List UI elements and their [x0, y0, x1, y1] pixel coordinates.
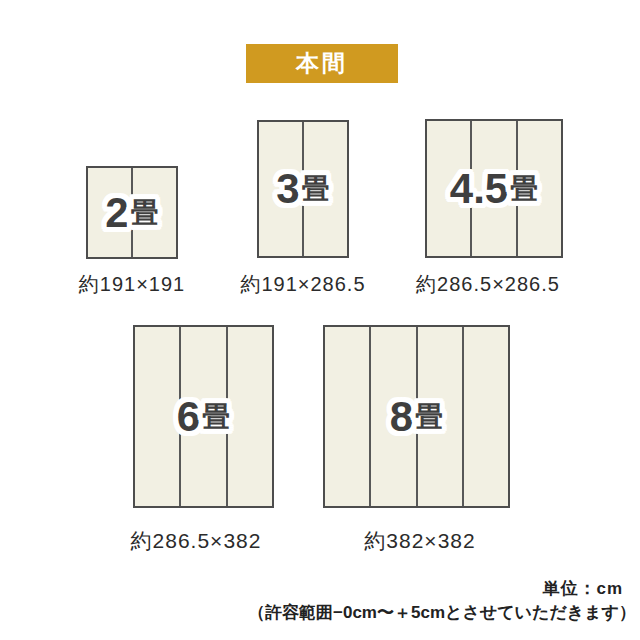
mat-size-number: 8 [390, 396, 413, 438]
mat-8jo-label: 8畳 [325, 327, 508, 506]
mat-3jo: 3畳 [257, 120, 349, 258]
mat-45jo: 4.5畳 [425, 119, 563, 258]
mat-3jo-dimensions: 約191×286.5 [203, 271, 403, 298]
mat-2jo: 2畳 [86, 166, 178, 259]
mat-size-number: 6 [177, 396, 200, 438]
mat-3jo-label: 3畳 [259, 122, 347, 256]
mat-2jo-label: 2畳 [88, 168, 176, 257]
mat-size-unit: 畳 [302, 175, 330, 203]
mat-size-number: 2 [105, 192, 128, 234]
mat-2jo-dimensions: 約191×191 [32, 271, 232, 298]
mat-size-number: 3 [276, 168, 299, 210]
mat-size-unit: 畳 [415, 403, 443, 431]
unit-note: 単位：cm [542, 577, 623, 600]
mat-size-unit: 畳 [131, 199, 159, 227]
mat-45jo-label: 4.5畳 [427, 121, 561, 256]
mat-6jo: 6畳 [133, 325, 274, 508]
tolerance-note: （許容範囲−0cm〜＋5cmとさせていただきます） [248, 601, 636, 624]
size-standard-label: 本間 [296, 48, 348, 79]
mat-6jo-dimensions: 約286.5×382 [91, 527, 301, 555]
size-chart-page: { "header": { "label": "本間" }, "mats": [… [0, 0, 640, 640]
mat-45jo-dimensions: 約286.5×286.5 [378, 271, 598, 298]
mat-6jo-label: 6畳 [135, 327, 272, 506]
mat-size-unit: 畳 [202, 403, 230, 431]
mat-8jo: 8畳 [323, 325, 510, 508]
mat-size-number: 4.5 [450, 168, 508, 210]
mat-8jo-dimensions: 約382×382 [315, 527, 525, 555]
size-standard-banner: 本間 [246, 44, 398, 83]
mat-size-unit: 畳 [510, 175, 538, 203]
